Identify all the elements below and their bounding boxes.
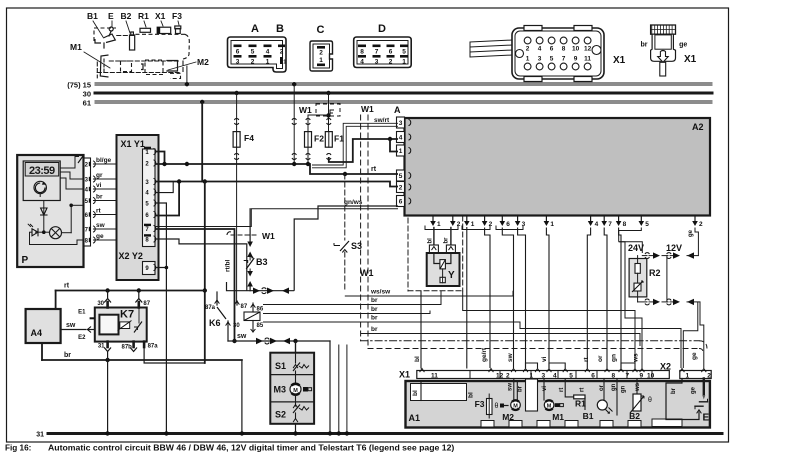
svg-text:2: 2 <box>699 221 703 228</box>
svg-text:K7: K7 <box>120 309 134 321</box>
svg-text:sw: sw <box>508 383 514 391</box>
svg-text:87b: 87b <box>122 345 133 351</box>
svg-text:bl: bl <box>468 392 475 398</box>
svg-text:ge: ge <box>688 229 694 237</box>
svg-text:2: 2 <box>319 50 323 57</box>
svg-text:M: M <box>293 388 298 394</box>
svg-text:5: 5 <box>645 221 649 228</box>
svg-text:B2: B2 <box>629 411 640 421</box>
svg-text:11: 11 <box>584 56 591 63</box>
svg-text:E1: E1 <box>78 310 86 316</box>
svg-text:M1: M1 <box>70 42 82 52</box>
svg-text:12: 12 <box>584 46 592 53</box>
svg-text:4: 4 <box>595 221 599 228</box>
svg-text:24V: 24V <box>628 243 644 253</box>
svg-text:bl: bl <box>412 390 419 396</box>
svg-text:sw/rt: sw/rt <box>374 117 390 124</box>
svg-text:rt: rt <box>580 388 586 392</box>
svg-text:S2: S2 <box>275 410 286 420</box>
svg-text:9: 9 <box>574 56 578 63</box>
svg-text:1: 1 <box>402 59 406 66</box>
svg-text:gn: gn <box>611 354 618 362</box>
svg-text:7: 7 <box>562 56 566 63</box>
svg-text:6: 6 <box>236 49 240 56</box>
svg-text:ge: ge <box>679 42 687 49</box>
svg-text:X1 Y1: X1 Y1 <box>121 139 145 149</box>
svg-text:gn: gn <box>621 385 627 393</box>
svg-text:vi: vi <box>96 182 102 189</box>
svg-text:gn/ws: gn/ws <box>344 199 363 206</box>
svg-text:E2: E2 <box>78 335 86 341</box>
svg-text:R1: R1 <box>575 399 586 409</box>
svg-text:8: 8 <box>360 49 364 56</box>
svg-text:6: 6 <box>506 221 510 228</box>
svg-text:vi: vi <box>541 356 548 362</box>
svg-text:87a: 87a <box>205 305 216 311</box>
svg-text:A: A <box>251 23 259 35</box>
svg-text:3: 3 <box>522 221 526 228</box>
svg-text:7: 7 <box>608 221 612 228</box>
svg-text:X1: X1 <box>399 370 410 380</box>
svg-text:rt: rt <box>96 208 102 215</box>
svg-text:B3: B3 <box>256 257 268 267</box>
svg-text:12V: 12V <box>666 243 682 253</box>
svg-text:F3: F3 <box>475 399 485 409</box>
svg-text:X2 Y2: X2 Y2 <box>119 251 143 261</box>
svg-text:br: br <box>64 352 71 359</box>
svg-text:θ: θ <box>648 397 652 404</box>
svg-text:F1: F1 <box>334 134 344 144</box>
svg-text:W1: W1 <box>360 268 374 278</box>
svg-text:1: 1 <box>686 373 690 380</box>
svg-text:23:59: 23:59 <box>29 165 55 177</box>
svg-text:9: 9 <box>640 373 644 380</box>
svg-text:sw: sw <box>96 222 106 229</box>
svg-text:8: 8 <box>623 221 627 228</box>
svg-text:M: M <box>513 404 518 410</box>
svg-text:30: 30 <box>97 301 104 307</box>
svg-text:2: 2 <box>399 185 403 192</box>
svg-text:br: br <box>371 306 378 313</box>
svg-text:10: 10 <box>647 373 655 380</box>
svg-text:2: 2 <box>506 373 510 380</box>
svg-text:br: br <box>96 194 103 201</box>
svg-text:Y: Y <box>448 270 455 281</box>
svg-text:(75) 15: (75) 15 <box>67 81 91 90</box>
svg-text:M2: M2 <box>502 412 514 422</box>
svg-text:61: 61 <box>83 99 91 108</box>
svg-text:sw: sw <box>66 322 76 329</box>
svg-text:A: A <box>394 105 401 115</box>
svg-text:4: 4 <box>538 46 542 53</box>
svg-text:br: br <box>641 42 648 49</box>
svg-text:5: 5 <box>251 49 255 56</box>
svg-text:F4: F4 <box>244 133 254 143</box>
svg-text:3: 3 <box>236 59 240 66</box>
svg-text:8: 8 <box>562 46 566 53</box>
svg-text:2: 2 <box>389 59 393 66</box>
svg-text:M3: M3 <box>274 385 287 395</box>
svg-text:2: 2 <box>457 221 461 228</box>
svg-text:31: 31 <box>36 432 44 439</box>
svg-text:bl: bl <box>414 356 421 362</box>
svg-text:ws/sw: ws/sw <box>370 289 391 296</box>
svg-text:3: 3 <box>399 120 403 127</box>
svg-text:2: 2 <box>489 221 493 228</box>
svg-text:5: 5 <box>569 373 573 380</box>
svg-text:1: 1 <box>319 57 323 64</box>
svg-text:X1: X1 <box>613 55 626 66</box>
svg-text:P: P <box>22 255 29 266</box>
svg-text:8: 8 <box>612 373 616 380</box>
svg-text:F3: F3 <box>172 11 182 21</box>
svg-text:M: M <box>547 404 552 410</box>
svg-text:R2: R2 <box>649 268 661 278</box>
svg-text:E: E <box>108 11 114 21</box>
svg-text:3: 3 <box>375 59 379 66</box>
svg-text:2: 2 <box>280 49 284 56</box>
svg-text:85: 85 <box>257 323 264 329</box>
svg-text:1: 1 <box>437 221 441 228</box>
svg-text:W1: W1 <box>299 105 312 115</box>
svg-text:4: 4 <box>266 49 270 56</box>
svg-text:E: E <box>703 413 710 424</box>
svg-text:7: 7 <box>375 49 379 56</box>
svg-text:sw: sw <box>507 352 514 362</box>
svg-text:B1: B1 <box>87 11 98 21</box>
svg-text:1: 1 <box>471 221 475 228</box>
svg-text:D: D <box>378 23 386 35</box>
svg-text:X2: X2 <box>660 362 671 372</box>
svg-text:S3: S3 <box>351 241 362 251</box>
svg-text:vi: vi <box>542 386 548 391</box>
svg-text:10: 10 <box>572 46 580 53</box>
svg-text:B2: B2 <box>121 11 132 21</box>
svg-text:5: 5 <box>402 49 406 56</box>
svg-text:X1: X1 <box>684 54 697 65</box>
svg-text:2: 2 <box>251 59 255 66</box>
svg-text:Automatic control circuit BBW: Automatic control circuit BBW 46 / DBW 4… <box>48 443 454 453</box>
svg-text:6: 6 <box>399 199 403 206</box>
svg-text:3: 3 <box>538 56 542 63</box>
svg-text:M1: M1 <box>552 412 564 422</box>
svg-text:S1: S1 <box>275 361 286 371</box>
svg-text:br: br <box>671 387 677 394</box>
svg-text:rt/bl: rt/bl <box>225 260 232 272</box>
svg-text:6: 6 <box>389 49 393 56</box>
svg-text:X1: X1 <box>155 11 166 21</box>
svg-text:4: 4 <box>360 59 364 66</box>
svg-text:br: br <box>371 326 378 333</box>
svg-text:B1: B1 <box>583 411 594 421</box>
svg-text:31: 31 <box>98 344 105 350</box>
svg-text:K6: K6 <box>209 318 221 328</box>
svg-text:F2: F2 <box>314 134 324 144</box>
svg-text:M2: M2 <box>197 57 209 67</box>
svg-text:11: 11 <box>431 373 438 380</box>
svg-text:rt: rt <box>583 356 590 362</box>
svg-text:87: 87 <box>241 304 248 310</box>
svg-text:br: br <box>371 297 378 304</box>
svg-text:87a: 87a <box>148 344 159 350</box>
svg-text:1: 1 <box>266 59 270 66</box>
svg-text:ge/rt: ge/rt <box>481 347 488 362</box>
svg-text:rt: rt <box>64 283 70 290</box>
svg-text:ws: ws <box>635 382 641 392</box>
svg-text:A2: A2 <box>692 122 704 132</box>
svg-text:gn: gn <box>611 383 617 391</box>
svg-text:5: 5 <box>399 173 403 180</box>
svg-text:6: 6 <box>591 373 595 380</box>
svg-text:4: 4 <box>553 373 557 380</box>
svg-text:ge: ge <box>691 386 697 394</box>
svg-text:rt: rt <box>371 166 377 173</box>
svg-text:1: 1 <box>526 56 530 63</box>
svg-text:5: 5 <box>550 56 554 63</box>
svg-text:br: br <box>371 315 378 322</box>
svg-text:6: 6 <box>550 46 554 53</box>
svg-text:1: 1 <box>283 60 286 66</box>
svg-text:A1: A1 <box>409 413 421 423</box>
svg-text:1: 1 <box>550 221 554 228</box>
svg-text:sw: sw <box>237 333 247 340</box>
svg-text:br: br <box>444 237 450 244</box>
svg-text:R1: R1 <box>138 11 149 21</box>
svg-text:1: 1 <box>399 148 403 155</box>
svg-text:4: 4 <box>399 135 403 142</box>
svg-text:Fig 16:: Fig 16: <box>5 444 31 453</box>
svg-text:A4: A4 <box>31 328 43 338</box>
svg-text:rt: rt <box>559 388 565 392</box>
svg-text:bl: bl <box>428 238 434 244</box>
svg-text:ge: ge <box>96 233 104 240</box>
svg-text:30: 30 <box>83 90 91 99</box>
svg-text:bl/ge: bl/ge <box>96 157 112 164</box>
svg-text:or: or <box>597 355 604 362</box>
svg-text:gr: gr <box>96 172 103 179</box>
svg-text:or: or <box>599 384 605 391</box>
svg-text:2: 2 <box>526 46 530 53</box>
svg-text:87: 87 <box>143 301 150 307</box>
svg-text:ge: ge <box>691 352 698 360</box>
svg-text:W1: W1 <box>262 231 275 241</box>
svg-text:B: B <box>276 23 284 35</box>
svg-text:W1: W1 <box>361 104 374 114</box>
svg-text:ws: ws <box>633 353 640 363</box>
svg-text:θ: θ <box>495 403 499 410</box>
svg-text:br: br <box>518 385 524 392</box>
svg-text:2: 2 <box>707 373 711 380</box>
svg-text:C: C <box>317 24 325 36</box>
